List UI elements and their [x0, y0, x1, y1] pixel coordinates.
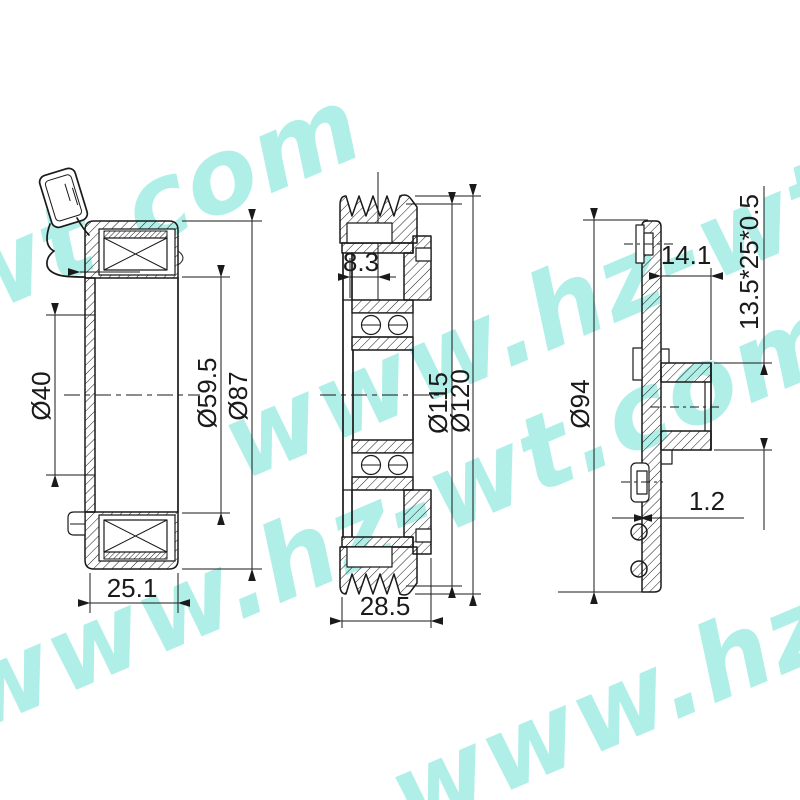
coil-shell-wall: [85, 278, 95, 512]
dim-label-coil-outer-dia: Ø87: [223, 371, 253, 420]
spring-rivet: [631, 524, 647, 540]
technical-drawing: Ø87 Ø59.5 Ø40 25.1: [0, 0, 800, 800]
bearing-bottom: [352, 440, 413, 490]
bracket-edge: [47, 224, 85, 277]
dim-label-spring-spec: 13.5*25*0.5: [734, 194, 764, 330]
dim-label-plate-dia: Ø94: [565, 379, 595, 428]
dim-groove-offset: 8.3: [343, 247, 396, 298]
dim-label-groove-offset: 8.3: [343, 247, 379, 277]
dim-spring-spec: 13.5*25*0.5: [714, 186, 772, 530]
bearing-top: [352, 300, 413, 350]
dim-coil-width: 25.1: [90, 573, 178, 613]
dim-label-coil-mid-dia: Ø59.5: [192, 358, 222, 429]
connector-plug: [38, 167, 89, 229]
plate-tab: [633, 348, 642, 380]
dim-label-coil-inner-dia: Ø40: [26, 371, 56, 420]
pulley-section-view: 8.3 Ø115 Ø120 28.5: [320, 172, 481, 628]
field-coil-view: Ø87 Ø59.5 Ø40 25.1: [26, 167, 262, 613]
dim-label-boss-length: 14.1: [661, 240, 712, 270]
drawing-canvas: www.hz-wt.com www.hz-wt.com www.hz-wt.co…: [0, 0, 800, 800]
dim-boss-length: 14.1: [661, 240, 712, 360]
spring-rivet: [631, 561, 647, 577]
pulley-web-bottom: [342, 537, 413, 547]
hub-plate-view: Ø94 14.1 13.5*25*0.5 1.2: [558, 186, 772, 592]
dim-label-gap: 1.2: [689, 486, 725, 516]
dim-label-pulley-width: 28.5: [360, 591, 411, 621]
dim-label-pulley-outer-dia: Ø120: [445, 369, 475, 433]
dim-label-coil-width: 25.1: [107, 573, 158, 603]
